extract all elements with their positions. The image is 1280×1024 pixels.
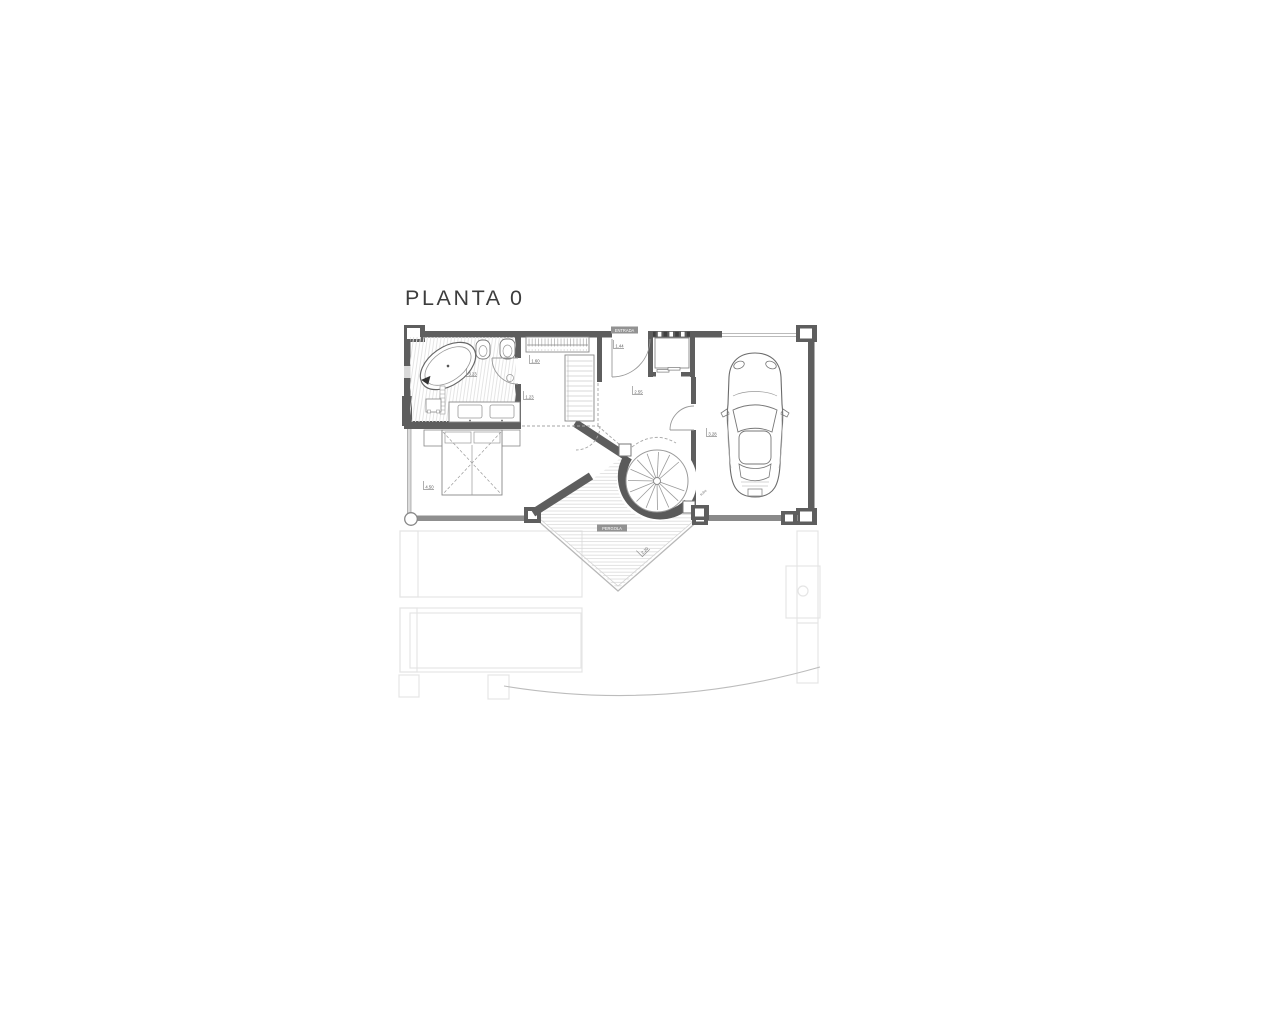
door-swing-arc [670, 406, 694, 430]
deck-feature-right [786, 566, 820, 618]
svg-text:2.55: 2.55 [634, 389, 643, 394]
bidet [476, 340, 490, 359]
wardrobe-shelves [567, 357, 593, 420]
svg-text:1.44: 1.44 [615, 343, 624, 348]
column-round-bottom-left [405, 513, 418, 526]
stool-leg [428, 410, 431, 413]
toilet-body [500, 339, 515, 359]
plot-boundary-curve [504, 667, 820, 696]
wardrobe-hangers [528, 339, 588, 351]
deck-pad-center [488, 675, 509, 699]
dim-label-bedroom: 4.50 [424, 481, 435, 490]
stair-post-north [619, 444, 631, 456]
svg-text:3.23: 3.23 [468, 371, 477, 376]
dim-label-hallway: 2.55 [633, 386, 644, 395]
deck-strip-right [797, 531, 818, 683]
svg-text:4.50: 4.50 [425, 484, 434, 489]
column-bottom-right-core [800, 512, 812, 522]
bath-stool [426, 399, 441, 413]
elevator-door-panel [657, 370, 669, 373]
elevator-machinery [675, 332, 679, 337]
pool-outer-outline [400, 608, 582, 672]
nightstand-right [502, 430, 520, 446]
garage [721, 353, 789, 497]
car-roof [739, 431, 771, 464]
car [721, 353, 789, 497]
floor-plan-page: PLANTA 0 [0, 0, 1280, 1024]
svg-text:1.60: 1.60 [531, 358, 540, 363]
garage-access-door [670, 406, 694, 430]
wall-garage-top-stub [696, 331, 722, 338]
sink-drain [501, 420, 503, 422]
elevator-cab [655, 338, 689, 368]
bathroom [410, 333, 520, 422]
vanity [449, 402, 520, 422]
stair-newel [654, 478, 661, 485]
elevator-machinery [687, 332, 691, 337]
svg-text:1.23: 1.23 [525, 394, 534, 399]
deck-strip-left-upper [400, 531, 418, 597]
stool-leg [437, 410, 440, 413]
tread [628, 481, 657, 482]
dim-label-closet-depth: 1.23 [524, 391, 535, 400]
wall-bedroom-bottom [417, 516, 527, 522]
vanity-sink-right [490, 405, 514, 418]
elevator-machinery [664, 332, 668, 337]
pool-inner-outline [410, 613, 581, 668]
dim-label-closet-width: 1.60 [530, 355, 541, 364]
deck-pad-left [399, 675, 419, 697]
svg-text:3.28: 3.28 [708, 431, 717, 436]
bedroom-window-left [408, 426, 412, 514]
wall-top [421, 331, 612, 338]
elevator-door-panel [668, 368, 680, 371]
tread [657, 481, 658, 510]
vanity-sink-left [458, 405, 482, 418]
terrace-slab-outline [400, 531, 582, 597]
wall-elevator-bottom-stub [648, 372, 656, 377]
entry-chip-label: ENTRADA [615, 328, 635, 333]
toilet [500, 339, 515, 359]
dim-label-garage: 3.28 [707, 428, 718, 437]
elevator-machinery-gap [658, 332, 662, 337]
bath-window [404, 366, 411, 378]
pergola-chip-label: PERGOLA [602, 526, 622, 531]
deck-strip-left-lower [400, 608, 417, 672]
wall-bath-left-lower [404, 378, 411, 398]
car-body [727, 353, 783, 497]
nightstand-left [424, 430, 442, 446]
wall-garage-left-upper [691, 377, 696, 404]
pillow-left [445, 432, 471, 443]
column-top-right-core [800, 329, 812, 339]
elevator-machinery-gap [681, 332, 685, 337]
elevator-machinery-gap [669, 332, 673, 337]
bedroom [424, 430, 520, 495]
deck-feature-circle [798, 586, 808, 596]
wall-closet-right [597, 337, 602, 382]
elevator [655, 338, 689, 372]
dressing-room [526, 337, 594, 421]
wall-bath-left-upper [404, 342, 411, 366]
stair-wall-block-core [695, 509, 704, 517]
dim-label-entry: 1.44 [614, 340, 625, 349]
stair-direction-note: sube [699, 489, 708, 497]
sink-drain [469, 420, 471, 422]
post-core [785, 515, 793, 522]
wall-elevator-bottom-stub [681, 372, 695, 377]
wall-elevator-right [690, 331, 695, 377]
floor-plan-drawing: sube ENTRADA PERGOLA [0, 0, 1280, 1024]
wall-right [808, 342, 815, 509]
wall-elevator-left [648, 331, 653, 377]
